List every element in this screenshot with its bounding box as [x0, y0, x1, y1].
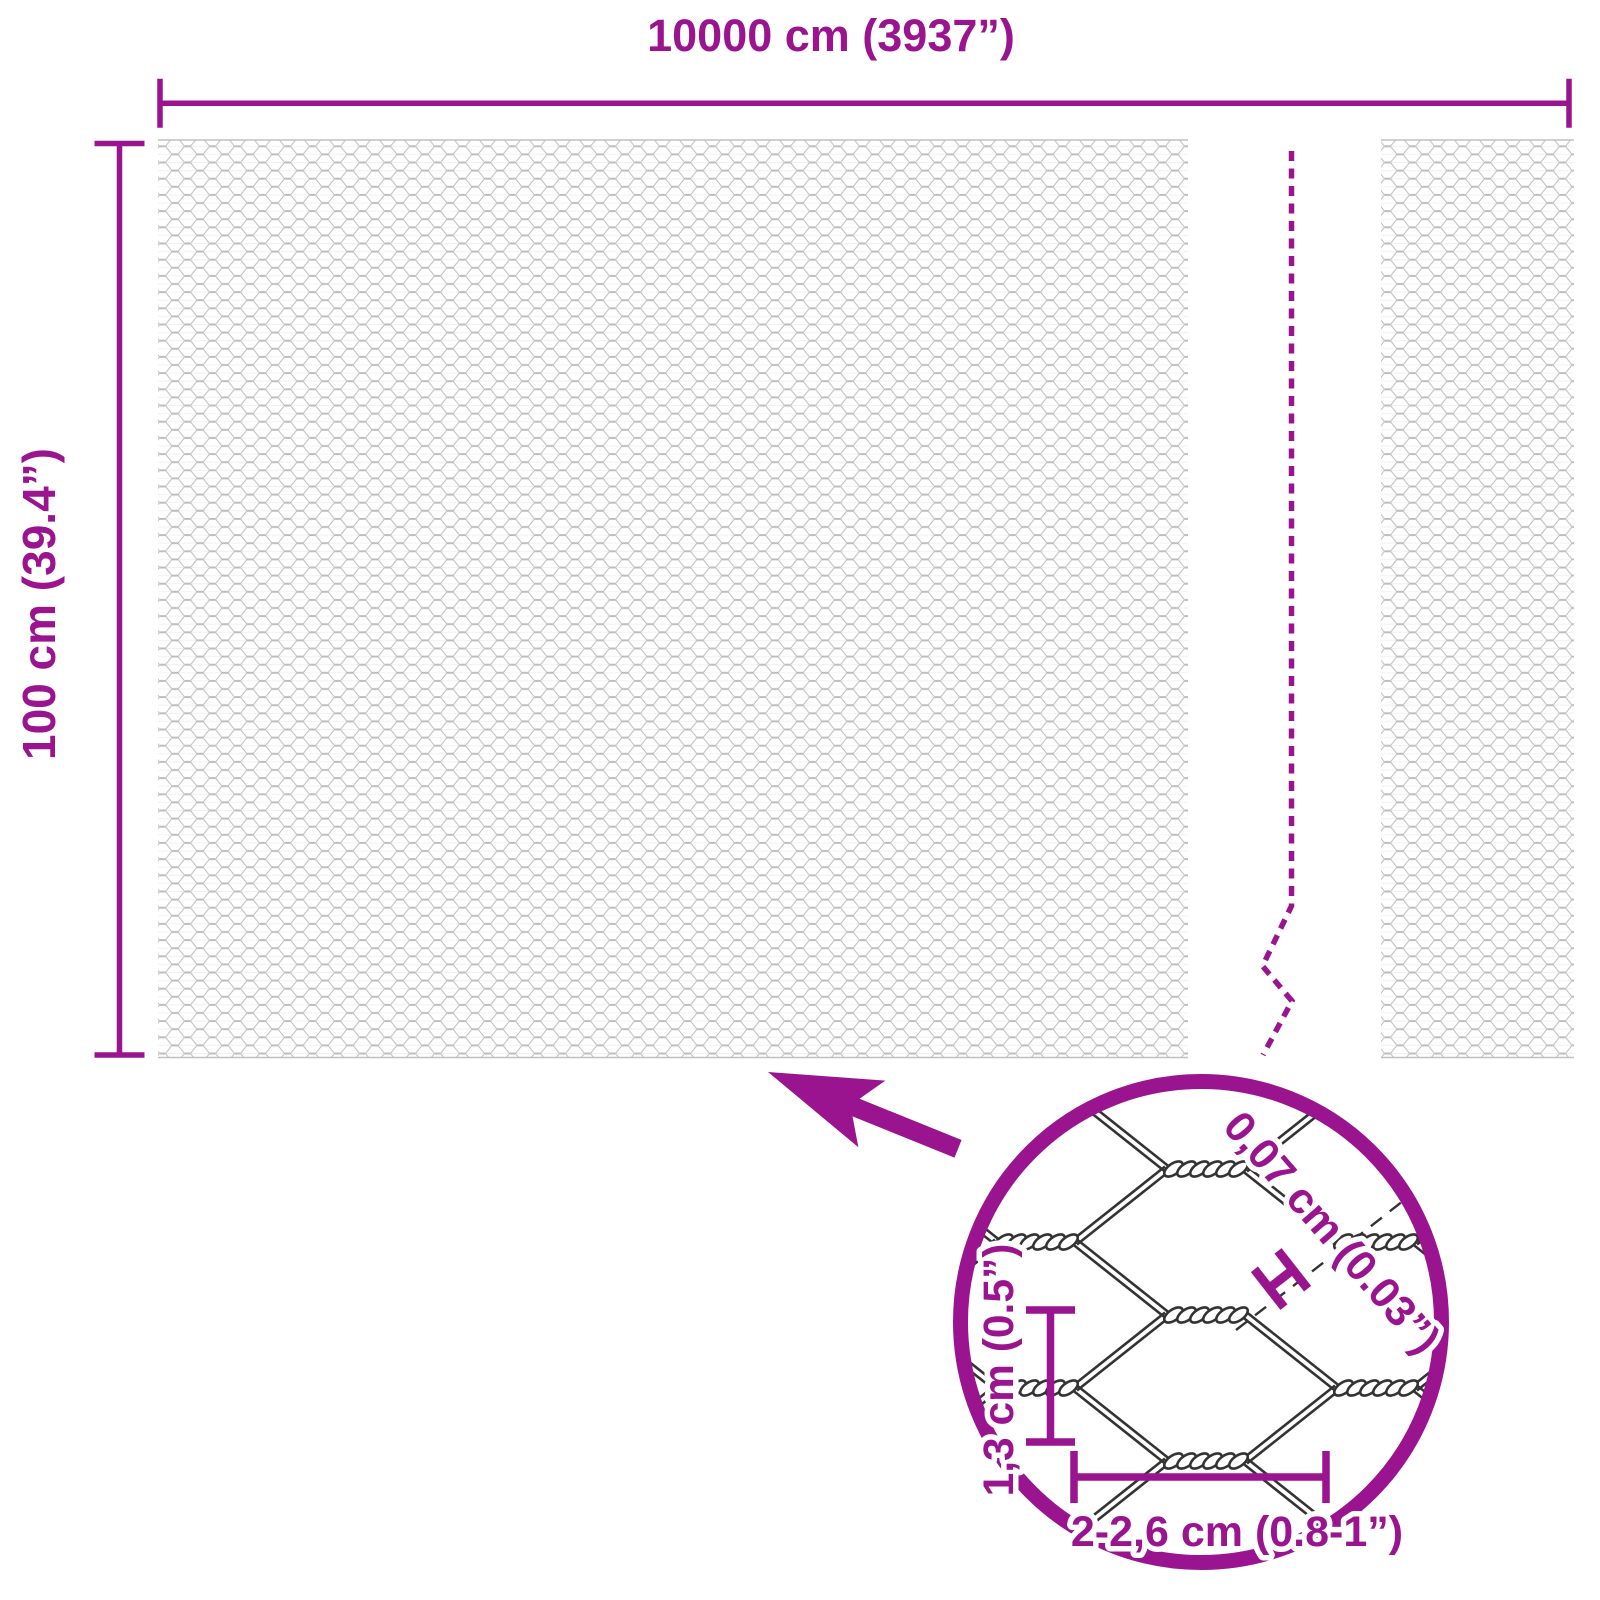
svg-text:100 cm (39.4”): 100 cm (39.4”) — [13, 448, 65, 760]
svg-text:2-2,6 cm (0.8-1”): 2-2,6 cm (0.8-1”) — [1071, 1508, 1403, 1556]
svg-text:1,3 cm (0.5”): 1,3 cm (0.5”) — [976, 1244, 1023, 1497]
svg-text:10000 cm (3937”): 10000 cm (3937”) — [647, 10, 1015, 61]
